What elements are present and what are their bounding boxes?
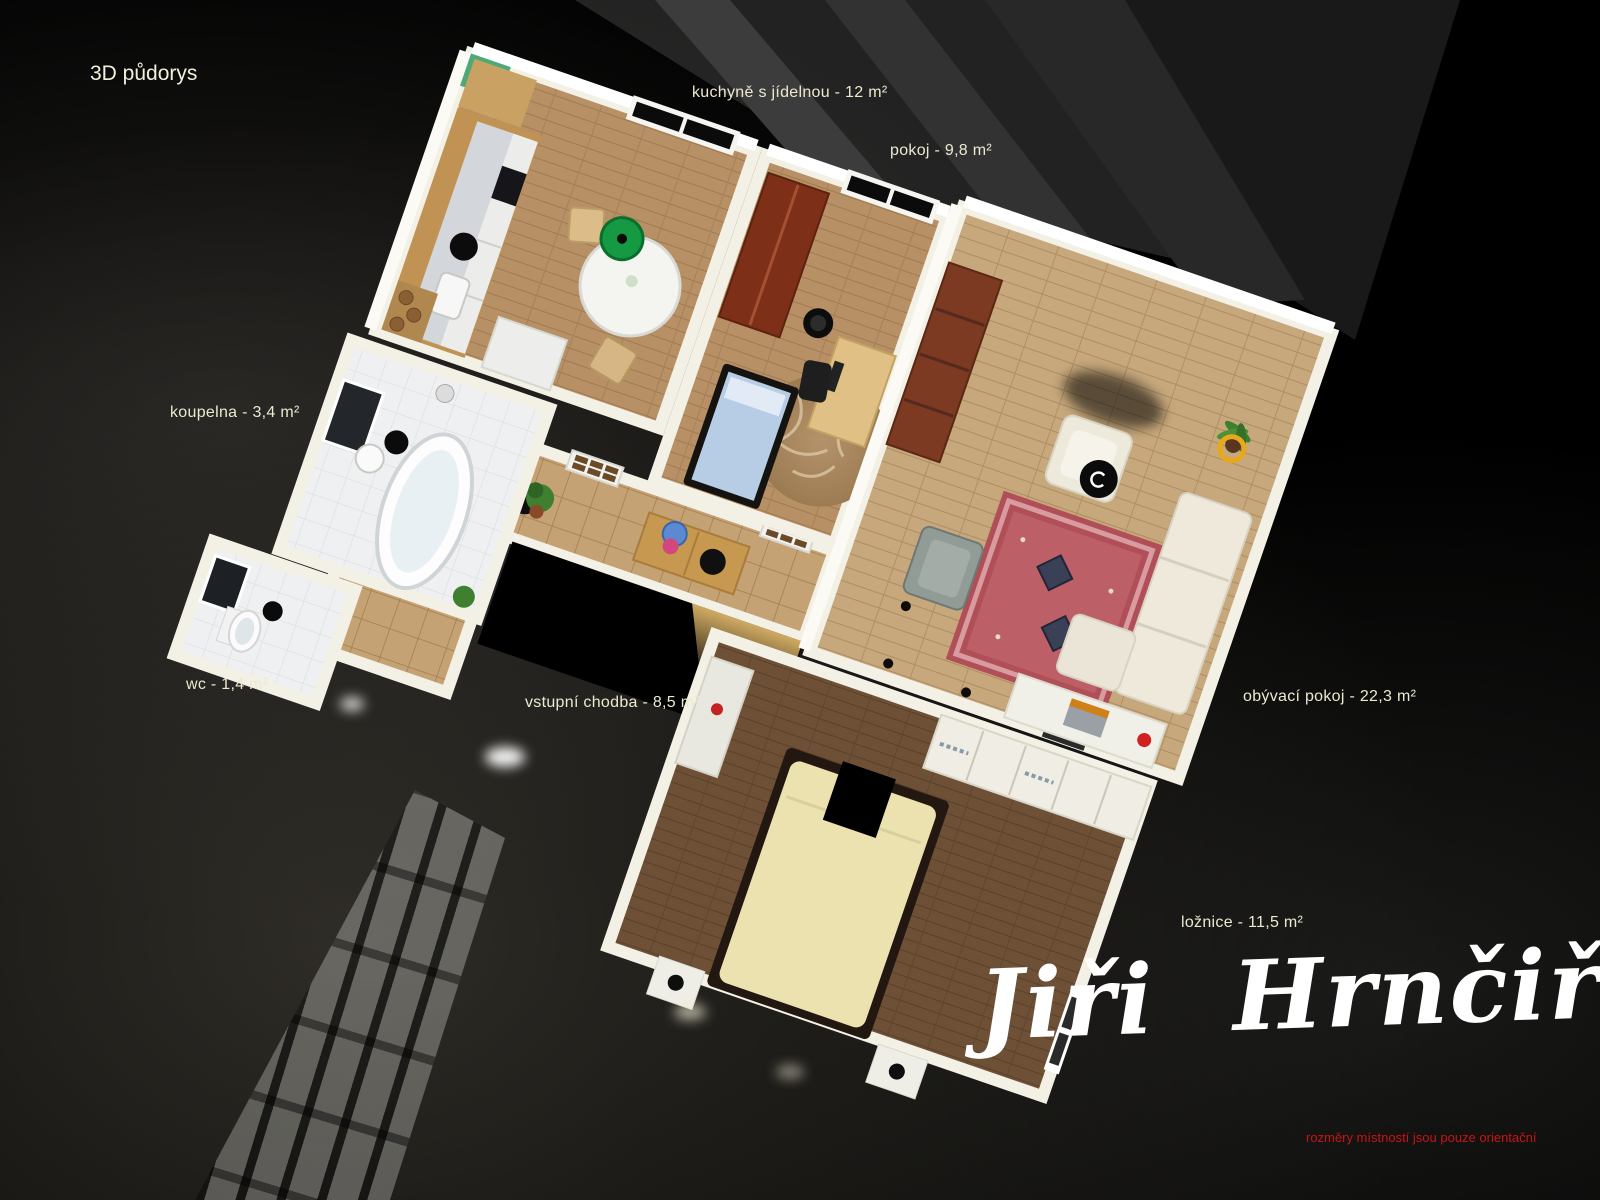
disclaimer-text: rozměry místností jsou pouze orientační: [1306, 1130, 1537, 1145]
room-label-pokoj: pokoj - 9,8 m²: [890, 142, 992, 160]
room-label-wc: wc - 1,4 m²: [186, 676, 268, 694]
room-label-bathroom: koupelna - 3,4 m²: [170, 404, 300, 422]
room-label-bedroom: ložnice - 11,5 m²: [1181, 914, 1303, 932]
page-title: 3D půdorys: [90, 62, 197, 86]
room-label-living: obývací pokoj - 22,3 m²: [1243, 688, 1416, 706]
room-label-hall: vstupní chodba - 8,5 m²: [525, 694, 700, 712]
floorplan-render: 3D půdorys kuchyně s jídelnou - 12 m² po…: [0, 0, 1600, 1200]
room-label-kitchen: kuchyně s jídelnou - 12 m²: [692, 84, 887, 102]
dining-chair-1: [568, 207, 604, 243]
designer-signature: Jiři Hrnčiř: [976, 927, 1600, 1062]
